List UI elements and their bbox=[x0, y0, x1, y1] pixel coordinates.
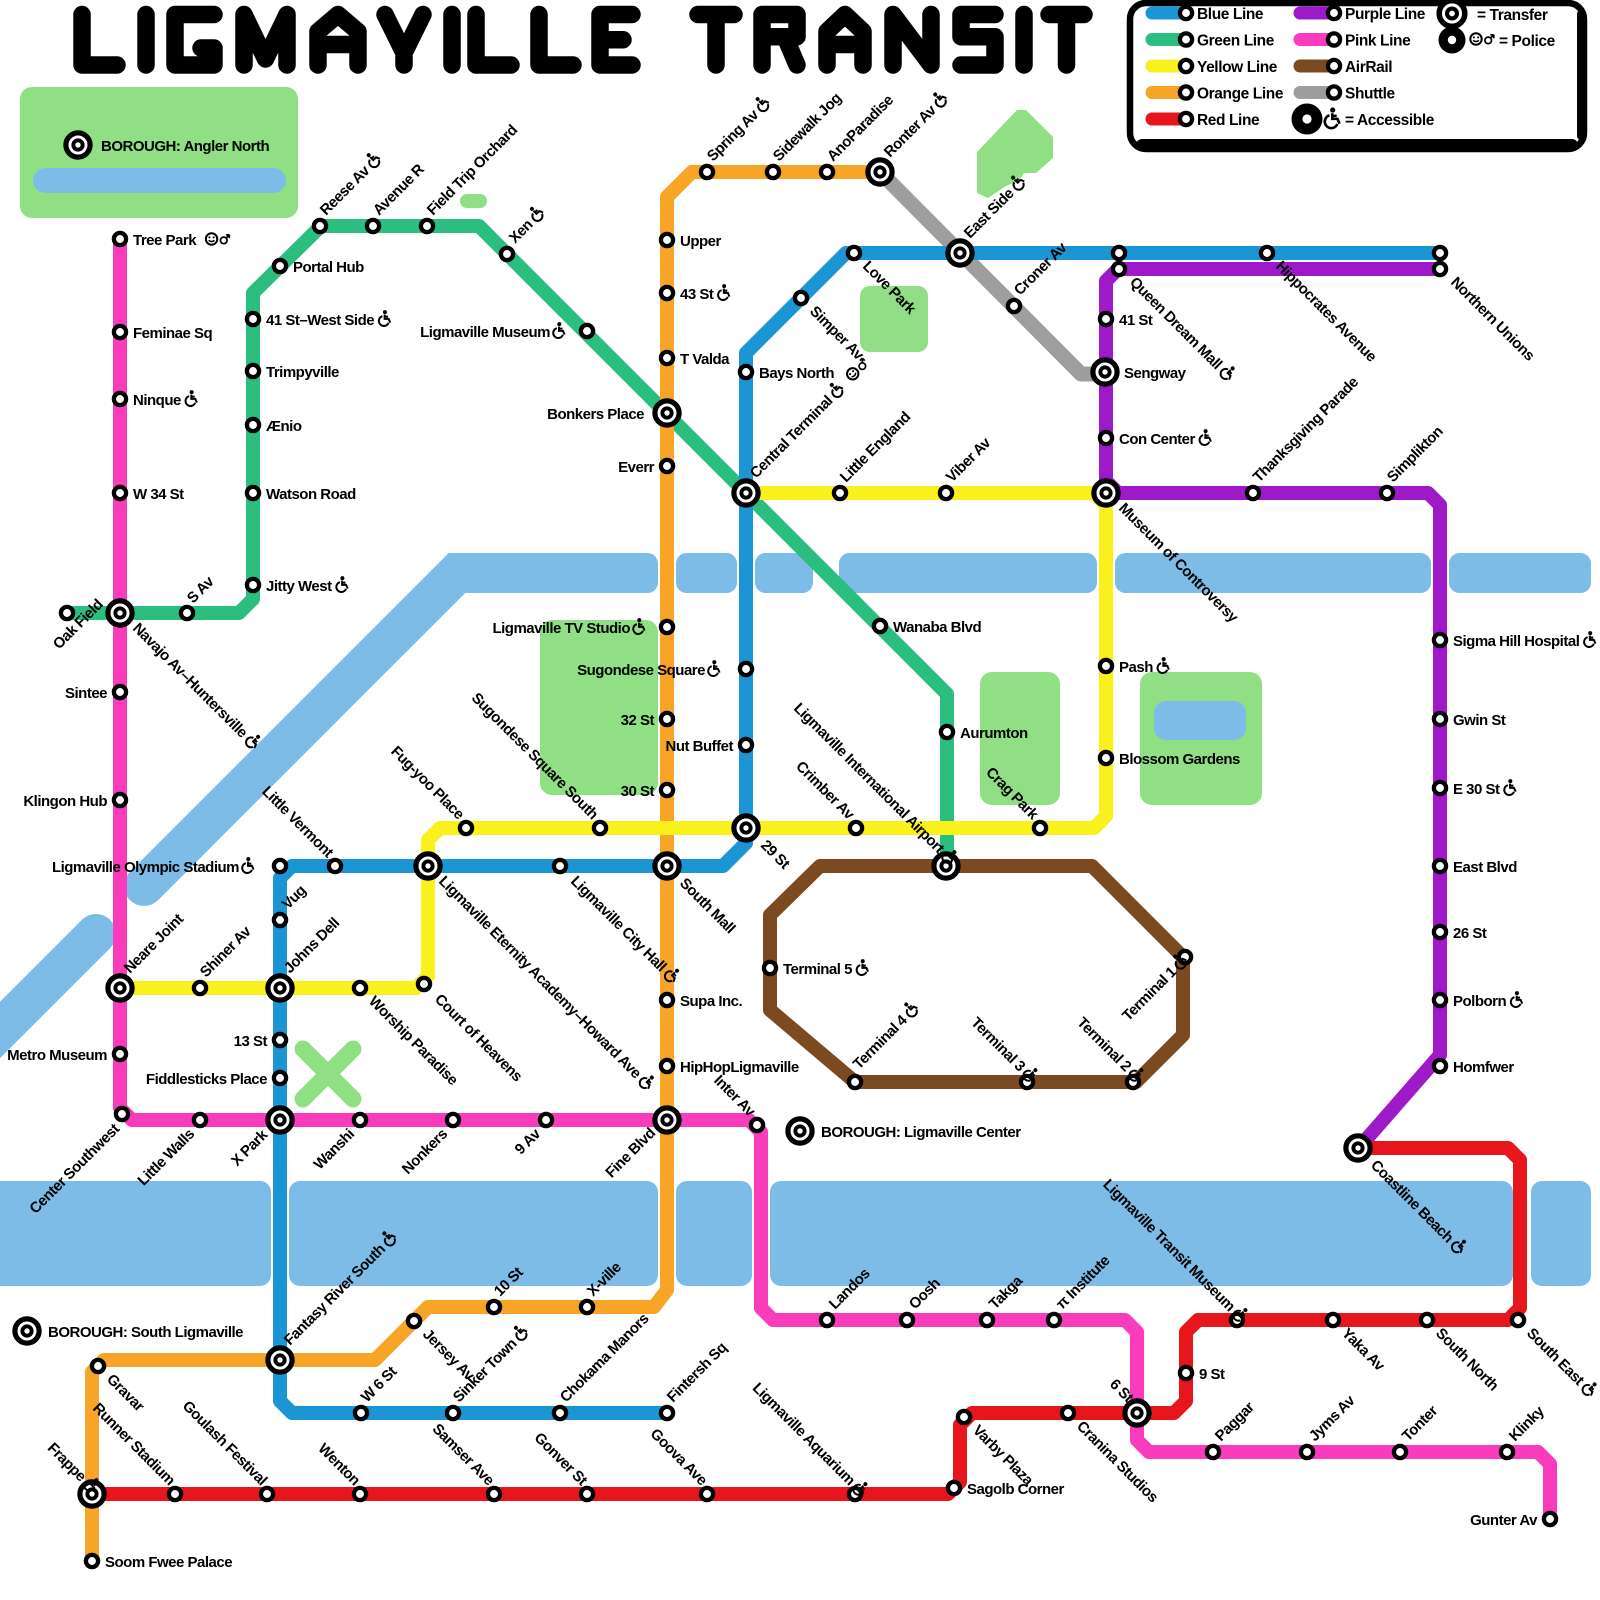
svg-text:South East: South East bbox=[1523, 1325, 1587, 1389]
svg-text:Red Line: Red Line bbox=[1197, 112, 1260, 129]
svg-text:Viber Av: Viber Av bbox=[943, 434, 995, 486]
svg-text:Purple Line: Purple Line bbox=[1345, 6, 1426, 23]
svg-text:9 St: 9 St bbox=[1199, 1366, 1225, 1383]
svg-text:41 St: 41 St bbox=[1119, 312, 1153, 329]
svg-text:Orange Line: Orange Line bbox=[1197, 86, 1284, 103]
svg-text:Trimpyville: Trimpyville bbox=[266, 364, 339, 381]
svg-text:Little England: Little England bbox=[837, 408, 914, 485]
svg-text:W 34 St: W 34 St bbox=[133, 486, 184, 503]
svg-text:Everr: Everr bbox=[618, 459, 655, 476]
svg-text:9 Av: 9 Av bbox=[512, 1125, 545, 1158]
svg-text:Simplikton: Simplikton bbox=[1384, 423, 1447, 486]
svg-text:Yaka Av: Yaka Av bbox=[1338, 1325, 1388, 1375]
svg-text:Portal Hub: Portal Hub bbox=[293, 259, 364, 276]
svg-text:32 St: 32 St bbox=[621, 712, 655, 729]
svg-text:Simper Av: Simper Av bbox=[806, 303, 867, 364]
svg-text:Nut Buffet: Nut Buffet bbox=[666, 738, 734, 755]
svg-text:Johns Dell: Johns Dell bbox=[281, 914, 343, 976]
svg-text:= Accessible: = Accessible bbox=[1345, 112, 1435, 129]
svg-text:Xen: Xen bbox=[506, 216, 537, 247]
svg-text:41 St–West Side: 41 St–West Side bbox=[266, 312, 374, 329]
svg-text:East Blvd: East Blvd bbox=[1453, 859, 1517, 876]
svg-text:Klingon Hub: Klingon Hub bbox=[23, 793, 107, 810]
svg-text:Fug-yoo Place: Fug-yoo Place bbox=[387, 743, 467, 823]
svg-text:Watson Road: Watson Road bbox=[266, 486, 356, 503]
svg-text:E 30 St: E 30 St bbox=[1453, 781, 1500, 798]
svg-text:29 St: 29 St bbox=[757, 837, 793, 873]
svg-text:T Valda: T Valda bbox=[680, 351, 730, 368]
svg-text:26 St: 26 St bbox=[1453, 925, 1487, 942]
svg-text:Central Terminal: Central Terminal bbox=[747, 392, 837, 482]
svg-text:Pink Line: Pink Line bbox=[1345, 33, 1411, 50]
svg-text:Sintee: Sintee bbox=[65, 685, 107, 702]
svg-text:Jitty West: Jitty West bbox=[266, 578, 332, 595]
svg-text:Gonver St: Gonver St bbox=[531, 1429, 591, 1489]
svg-text:South North: South North bbox=[1432, 1325, 1502, 1395]
svg-text:Shuttle: Shuttle bbox=[1345, 86, 1396, 103]
svg-text:Metro Museum: Metro Museum bbox=[7, 1047, 107, 1064]
svg-text:Blue Line: Blue Line bbox=[1197, 6, 1264, 23]
svg-text:HipHopLigmaville: HipHopLigmaville bbox=[680, 1059, 799, 1076]
svg-text:X Park: X Park bbox=[228, 1126, 272, 1170]
svg-text:Cranina Studios: Cranina Studios bbox=[1073, 1418, 1161, 1506]
svg-text:Little Walls: Little Walls bbox=[134, 1126, 197, 1189]
svg-text:Green Line: Green Line bbox=[1197, 33, 1275, 50]
svg-text:Polborn: Polborn bbox=[1453, 993, 1506, 1010]
svg-text:Pash: Pash bbox=[1119, 659, 1153, 676]
svg-text:Ninque: Ninque bbox=[133, 392, 181, 409]
svg-text:Ligmaville Museum: Ligmaville Museum bbox=[420, 324, 550, 341]
svg-text:Soom Fwee Palace: Soom Fwee Palace bbox=[105, 1554, 232, 1571]
svg-text:= Police: = Police bbox=[1499, 33, 1556, 50]
svg-text:Bonkers Place: Bonkers Place bbox=[547, 406, 644, 423]
svg-text:Little Vermont: Little Vermont bbox=[258, 783, 336, 861]
svg-text:Terminal 5: Terminal 5 bbox=[783, 961, 852, 978]
svg-text:Sugondese Square: Sugondese Square bbox=[577, 662, 705, 679]
svg-text:Spring Av: Spring Av bbox=[704, 106, 763, 165]
svg-text:Wenton: Wenton bbox=[315, 1440, 364, 1489]
svg-text:South Mall: South Mall bbox=[676, 875, 738, 937]
svg-text:Con Center: Con Center bbox=[1119, 431, 1196, 448]
svg-text:Ligmaville City Hall: Ligmaville City Hall bbox=[567, 873, 669, 975]
svg-text:Goova Ave: Goova Ave bbox=[647, 1425, 711, 1489]
svg-text:43 St: 43 St bbox=[680, 286, 714, 303]
svg-text:Samser Ave: Samser Ave bbox=[429, 1420, 498, 1489]
svg-text:Tree Park: Tree Park bbox=[133, 232, 197, 249]
svg-text:BOROUGH: Angler North: BOROUGH: Angler North bbox=[101, 138, 269, 155]
svg-text:Blossom Gardens: Blossom Gardens bbox=[1119, 751, 1240, 768]
svg-text:Reese Av: Reese Av bbox=[317, 162, 374, 219]
svg-text:Frappe: Frappe bbox=[44, 1440, 89, 1485]
svg-text:Homfwer: Homfwer bbox=[1453, 1059, 1514, 1076]
svg-text:Terminal 4: Terminal 4 bbox=[850, 1011, 912, 1073]
svg-text:Northern Unions: Northern Unions bbox=[1447, 274, 1538, 365]
svg-text:S Av: S Av bbox=[184, 573, 218, 607]
svg-text:Ligmaville Aquarium: Ligmaville Aquarium bbox=[749, 1380, 858, 1489]
svg-text:Sengway: Sengway bbox=[1124, 365, 1187, 382]
svg-text:Nonkers: Nonkers bbox=[399, 1126, 451, 1178]
svg-text:Klinky: Klinky bbox=[1506, 1402, 1549, 1445]
svg-text:Aurumton: Aurumton bbox=[960, 725, 1028, 742]
svg-text:Ligmaville TV Studio: Ligmaville TV Studio bbox=[492, 620, 630, 637]
svg-text:Supa Inc.: Supa Inc. bbox=[680, 993, 743, 1010]
svg-text:Sagolb Corner: Sagolb Corner bbox=[967, 1481, 1065, 1498]
svg-text:Ligmaville Olympic Stadium: Ligmaville Olympic Stadium bbox=[52, 859, 239, 876]
svg-text:Ænio: Ænio bbox=[266, 418, 302, 435]
svg-text:Sigma Hill Hospital: Sigma Hill Hospital bbox=[1453, 633, 1580, 650]
svg-text:Upper: Upper bbox=[680, 233, 722, 250]
svg-text:W 6 St: W 6 St bbox=[358, 1363, 401, 1406]
svg-text:Fiddlesticks Place: Fiddlesticks Place bbox=[146, 1071, 267, 1088]
svg-text:Terminal 3: Terminal 3 bbox=[967, 1014, 1028, 1075]
svg-text:Gwin St: Gwin St bbox=[1453, 712, 1506, 729]
svg-text:Fintersh Sq: Fintersh Sq bbox=[664, 1339, 731, 1406]
svg-text:Neare Joint: Neare Joint bbox=[121, 911, 187, 977]
svg-text:Avenue R: Avenue R bbox=[370, 161, 428, 219]
svg-text:BOROUGH: Ligmaville Center: BOROUGH: Ligmaville Center bbox=[821, 1124, 1021, 1141]
svg-text:= Transfer: = Transfer bbox=[1477, 7, 1548, 24]
svg-text:Terminal 2: Terminal 2 bbox=[1073, 1014, 1134, 1075]
svg-text:Tonter: Tonter bbox=[1399, 1402, 1442, 1445]
svg-text:AirRail: AirRail bbox=[1345, 59, 1392, 76]
svg-text:Terminal 1: Terminal 1 bbox=[1119, 964, 1180, 1025]
svg-text:Paggar: Paggar bbox=[1212, 1399, 1258, 1445]
svg-text:Feminae Sq: Feminae Sq bbox=[133, 325, 213, 342]
svg-text:Jyms Av: Jyms Av bbox=[1306, 1392, 1359, 1445]
svg-text:Gunter Av: Gunter Av bbox=[1470, 1512, 1538, 1529]
svg-text:Navajo Av–Huntersville: Navajo Av–Huntersville bbox=[129, 620, 250, 741]
svg-text:Thanksgiving Parade: Thanksgiving Parade bbox=[1250, 374, 1362, 486]
svg-text:Varby Plaza: Varby Plaza bbox=[969, 1422, 1037, 1490]
svg-text:BOROUGH: South Ligmaville: BOROUGH: South Ligmaville bbox=[48, 1324, 243, 1341]
svg-text:Oak Field: Oak Field bbox=[50, 596, 107, 653]
svg-text:Ligmaville Eternity Academy–Ho: Ligmaville Eternity Academy–Howard Ave bbox=[435, 873, 644, 1082]
svg-text:Bays North: Bays North bbox=[759, 365, 834, 382]
svg-text:Yellow Line: Yellow Line bbox=[1197, 59, 1278, 76]
svg-text:Fine Blvd: Fine Blvd bbox=[602, 1125, 659, 1182]
svg-text:Goulash Festival: Goulash Festival bbox=[179, 1398, 270, 1489]
svg-text:Chokama Manors: Chokama Manors bbox=[557, 1310, 653, 1406]
svg-text:Shiner Av: Shiner Av bbox=[197, 922, 255, 980]
svg-text:Wanshi: Wanshi bbox=[311, 1126, 358, 1173]
svg-text:Wanaba Blvd: Wanaba Blvd bbox=[893, 619, 981, 636]
svg-text:30 St: 30 St bbox=[621, 783, 655, 800]
svg-text:13 St: 13 St bbox=[234, 1033, 268, 1050]
